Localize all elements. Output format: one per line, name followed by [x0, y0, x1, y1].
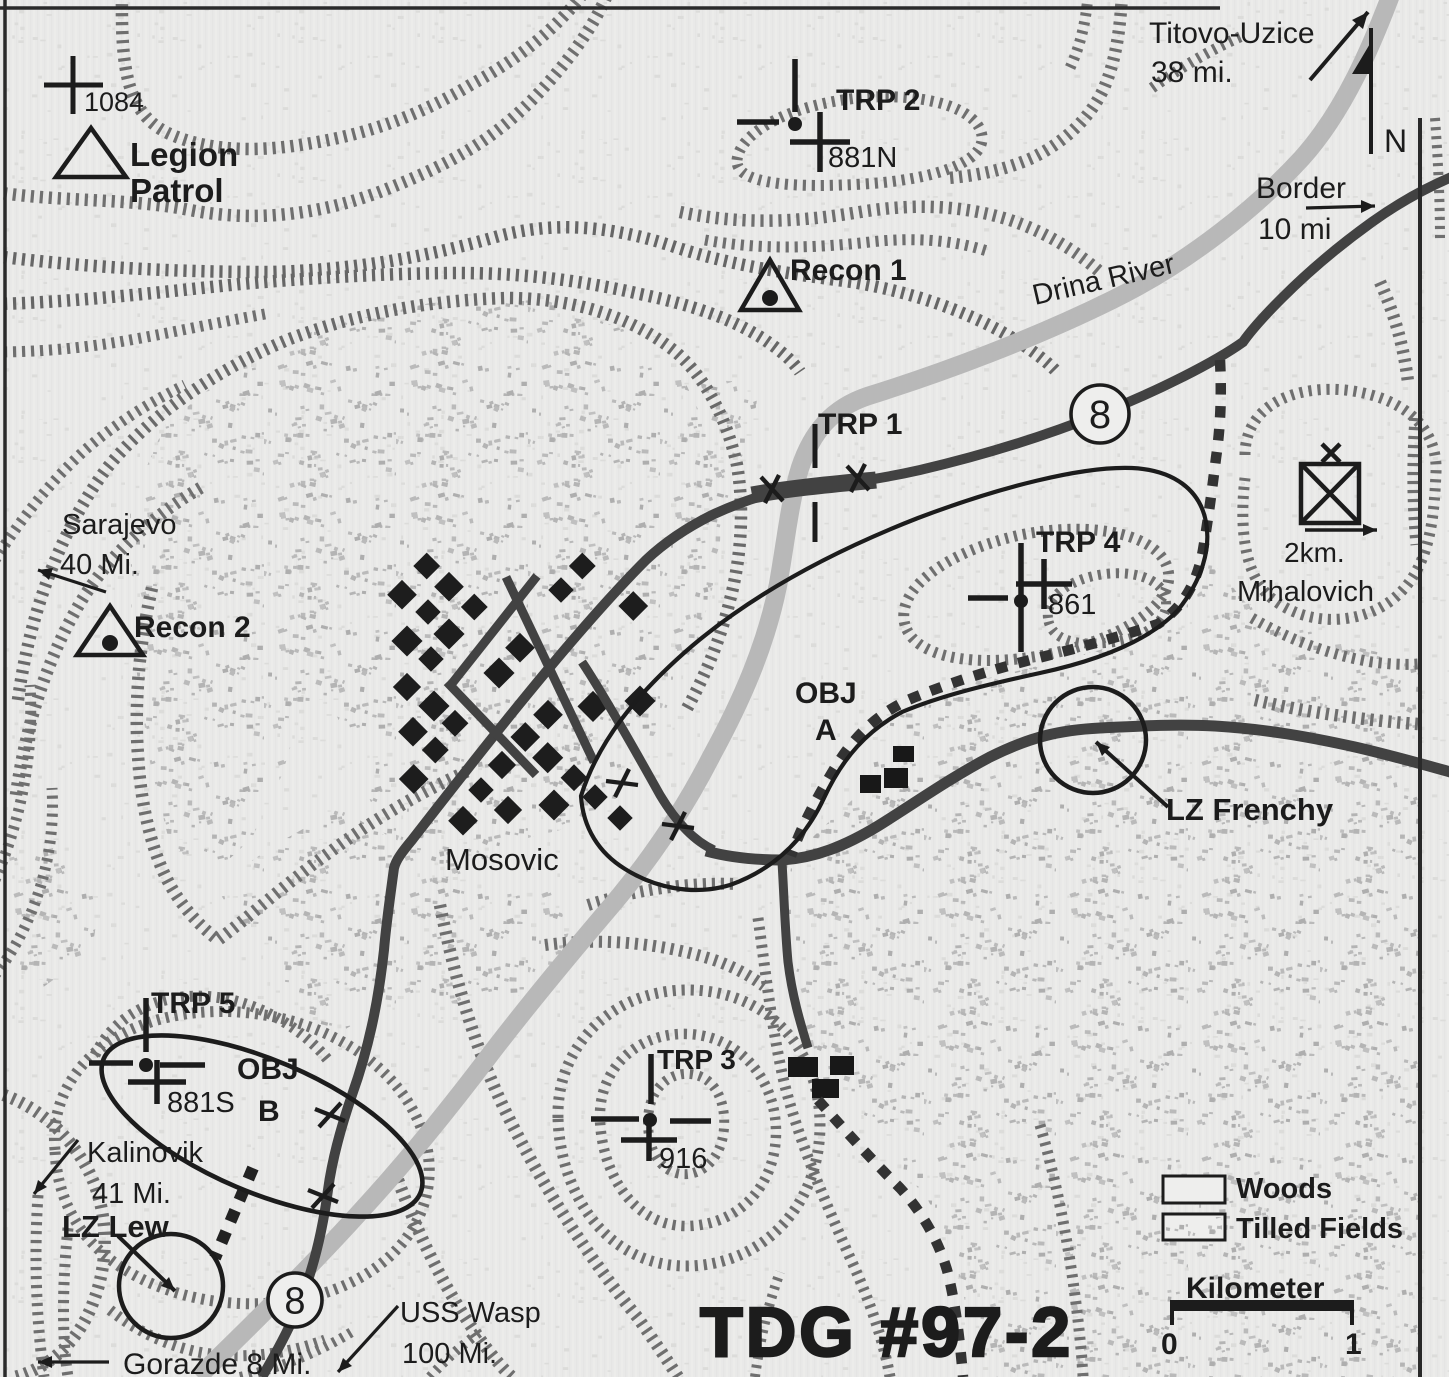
svg-text:881S: 881S	[167, 1087, 235, 1119]
svg-text:Sarajevo: Sarajevo	[62, 509, 176, 541]
svg-text:Gorazde 8 Mi.: Gorazde 8 Mi.	[123, 1348, 311, 1377]
svg-text:OBJ: OBJ	[795, 677, 857, 710]
svg-text:Kalinovik: Kalinovik	[87, 1137, 204, 1169]
svg-text:2km.: 2km.	[1284, 537, 1345, 568]
svg-text:0: 0	[1161, 1328, 1178, 1361]
svg-text:Recon 2: Recon 2	[134, 611, 251, 644]
svg-text:TRP 4: TRP 4	[1036, 526, 1121, 559]
svg-text:100 Mi.: 100 Mi.	[402, 1338, 497, 1370]
svg-text:LZ Frenchy: LZ Frenchy	[1166, 792, 1334, 827]
svg-text:USS Wasp: USS Wasp	[400, 1297, 541, 1329]
svg-text:Recon 1: Recon 1	[790, 254, 907, 287]
svg-text:40 Mi.: 40 Mi.	[60, 549, 139, 581]
svg-text:Titovo-Uzice: Titovo-Uzice	[1149, 17, 1315, 50]
svg-text:A: A	[815, 714, 837, 747]
svg-text:B: B	[258, 1095, 280, 1128]
svg-text:861: 861	[1048, 589, 1096, 621]
svg-text:Patrol: Patrol	[130, 172, 224, 209]
svg-text:1: 1	[1345, 1328, 1362, 1361]
svg-text:Border: Border	[1256, 172, 1346, 205]
svg-text:41 Mi.: 41 Mi.	[92, 1178, 171, 1210]
svg-text:OBJ: OBJ	[237, 1053, 299, 1086]
svg-text:8: 8	[1089, 393, 1111, 437]
svg-text:38 mi.: 38 mi.	[1151, 56, 1233, 89]
svg-text:TRP 5: TRP 5	[151, 987, 235, 1020]
svg-text:Mosovic: Mosovic	[445, 842, 559, 877]
svg-text:Legion: Legion	[130, 136, 238, 173]
svg-text:1084: 1084	[84, 87, 144, 117]
svg-text:10 mi: 10 mi	[1258, 213, 1331, 246]
svg-text:8: 8	[284, 1280, 305, 1322]
svg-text:N: N	[1384, 123, 1407, 159]
svg-text:881N: 881N	[828, 142, 897, 174]
svg-text:Woods: Woods	[1236, 1173, 1332, 1205]
svg-text:TRP 1: TRP 1	[818, 408, 902, 441]
svg-text:LZ Lew: LZ Lew	[62, 1209, 170, 1244]
svg-text:Tilled Fields: Tilled Fields	[1236, 1213, 1403, 1245]
svg-text:Mihalovich: Mihalovich	[1237, 576, 1374, 608]
svg-text:916: 916	[659, 1143, 707, 1175]
svg-text:TRP 2: TRP 2	[836, 84, 920, 117]
svg-text:TRP 3: TRP 3	[657, 1044, 736, 1075]
svg-text:Kilometer: Kilometer	[1186, 1272, 1325, 1305]
svg-text:TDG #97-2: TDG #97-2	[700, 1293, 1073, 1371]
